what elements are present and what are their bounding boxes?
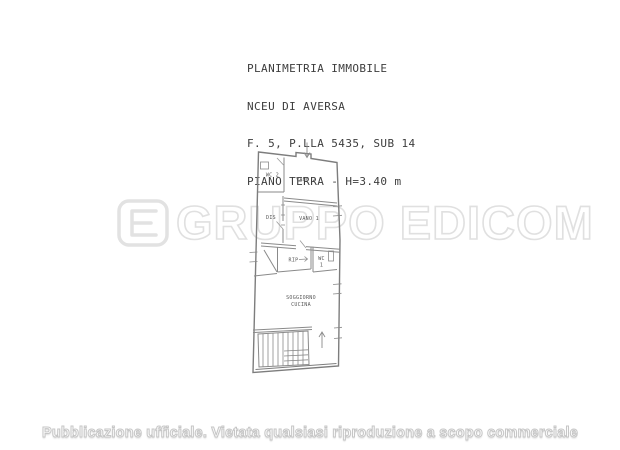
- room-label-dis: DIS: [266, 215, 276, 221]
- edicom-logo-icon: [116, 198, 170, 250]
- footer-legal-notice: Pubblicazione ufficiale. Vietata qualsia…: [0, 418, 620, 448]
- title-line-nceu: NCEU DI AVERSA: [247, 101, 416, 114]
- room-label-wc-1-line2: 1: [320, 263, 323, 269]
- room-label-rip: RIP: [289, 258, 299, 264]
- window-marks: [250, 206, 343, 339]
- room-label-vano-2: VANO 2: [296, 177, 316, 183]
- wc1-fixture: [329, 251, 334, 261]
- title-line-planimetria: PLANIMETRIA IMMOBILE: [247, 63, 416, 76]
- cadastral-floor-plan-page: PLANIMETRIA IMMOBILE NCEU DI AVERSA F. 5…: [0, 0, 620, 450]
- room-label-wc-2: WC 2: [266, 173, 279, 179]
- wc2-fixture: [261, 162, 269, 169]
- room-label-soggiorno: SOGGIORNO: [286, 295, 316, 301]
- floor-plan: WC 2 VANO 2 DIS VANO 1 RIP WC 1 SOGGIORN…: [230, 136, 380, 398]
- entrance-arrow-icon: [304, 143, 310, 158]
- staircase: [258, 331, 309, 367]
- room-label-wc-1-line1: WC: [318, 256, 325, 262]
- room-label-vano-1: VANO 1: [299, 216, 319, 222]
- room-label-cucina: CUCINA: [291, 302, 311, 308]
- stairs-up-arrow-icon: [319, 332, 325, 348]
- rip-door-arrow-icon: [299, 257, 308, 262]
